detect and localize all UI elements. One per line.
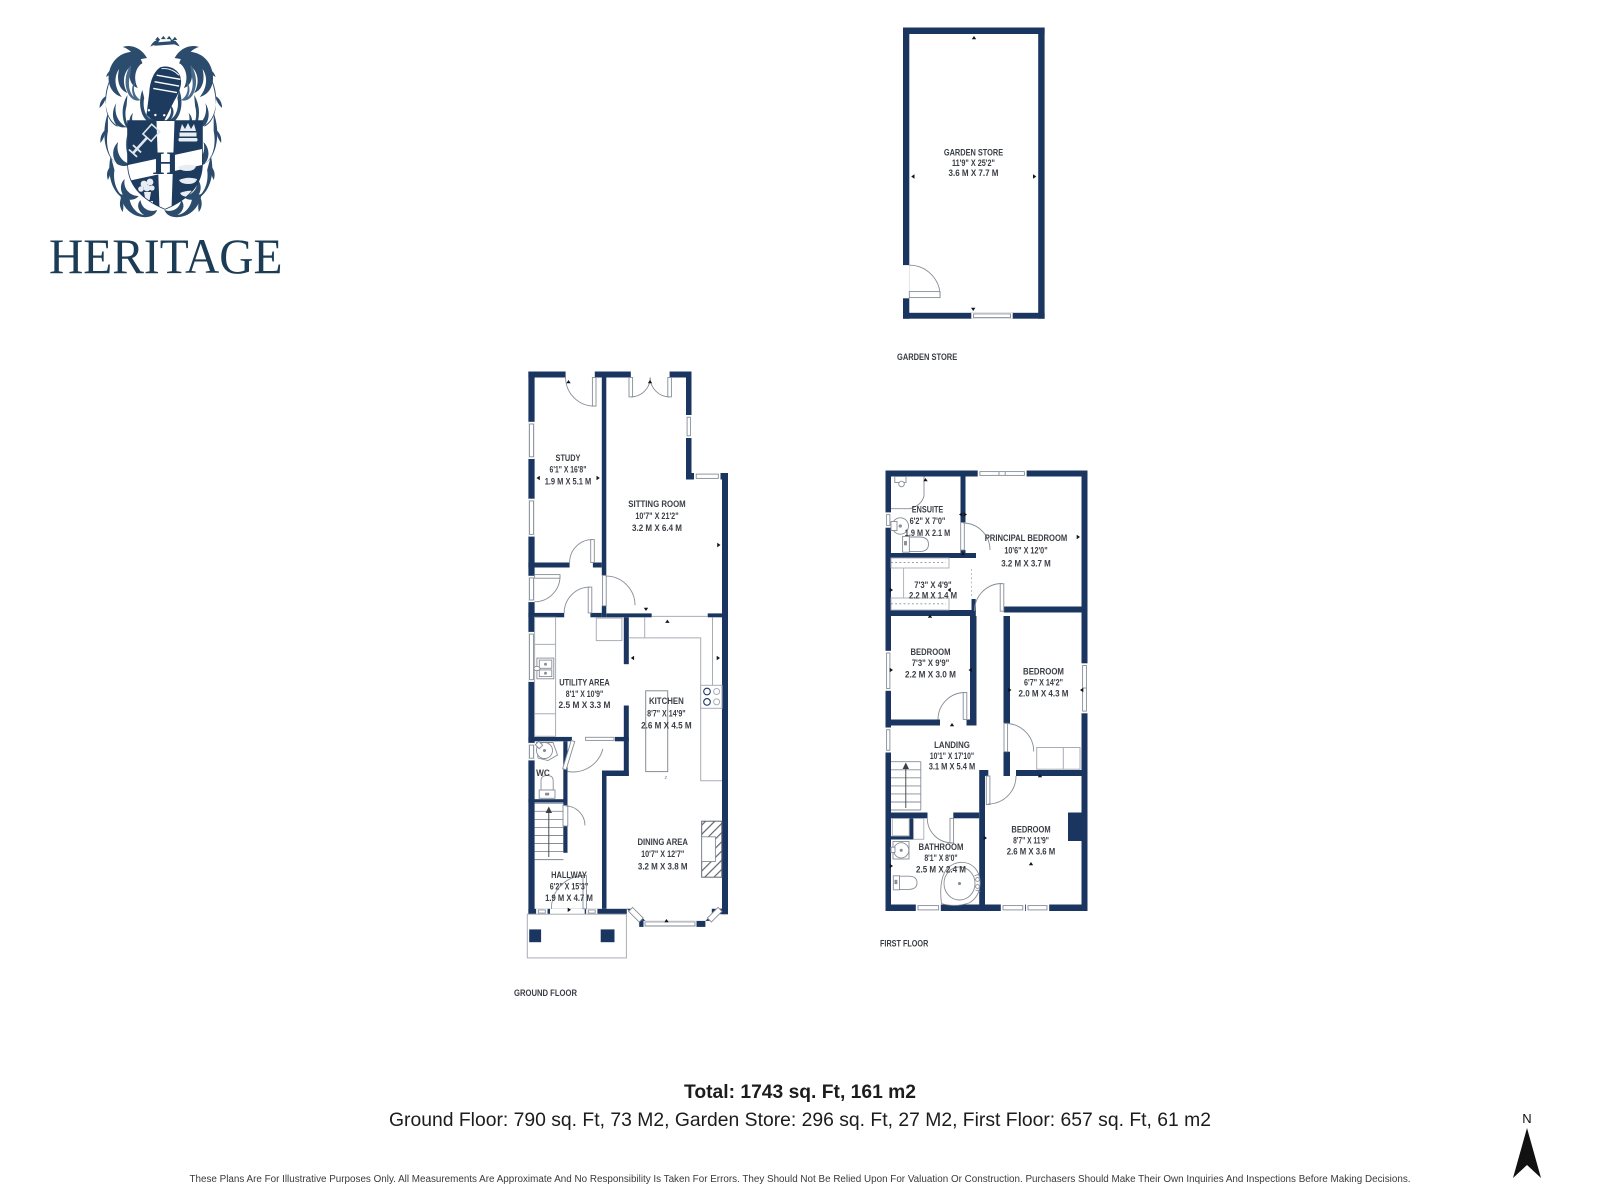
svg-text:2.2 M X 3.0 M: 2.2 M X 3.0 M — [905, 669, 956, 679]
svg-text:KITCHEN: KITCHEN — [649, 696, 684, 706]
svg-text:10'7" X 12'7": 10'7" X 12'7" — [641, 849, 684, 859]
svg-text:7'3" X 4'9": 7'3" X 4'9" — [914, 580, 951, 590]
svg-text:1.9 M X 5.1 M: 1.9 M X 5.1 M — [545, 476, 592, 486]
svg-text:3.2 M X 3.7 M: 3.2 M X 3.7 M — [1001, 558, 1051, 568]
svg-text:BATHROOM: BATHROOM — [919, 842, 964, 852]
svg-text:PRINCIPAL BEDROOM: PRINCIPAL BEDROOM — [985, 533, 1068, 543]
svg-text:DINING AREA: DINING AREA — [637, 837, 688, 847]
svg-text:2.6 M X 3.6 M: 2.6 M X 3.6 M — [1007, 847, 1055, 857]
svg-text:BEDROOM: BEDROOM — [1023, 667, 1064, 677]
svg-text:6'2" X 15'3": 6'2" X 15'3" — [550, 882, 589, 892]
svg-text:8'7" X 14'9": 8'7" X 14'9" — [647, 708, 686, 718]
svg-text:2.2 M X 1.4 M: 2.2 M X 1.4 M — [909, 591, 957, 601]
svg-text:11'9" X 25'2": 11'9" X 25'2" — [952, 158, 995, 168]
svg-text:FIRST FLOOR: FIRST FLOOR — [880, 939, 928, 950]
svg-text:H: H — [153, 146, 179, 182]
svg-text:2.6 M X 4.5 M: 2.6 M X 4.5 M — [641, 721, 692, 731]
svg-text:LANDING: LANDING — [934, 740, 970, 750]
svg-text:3.1 M X 5.4 M: 3.1 M X 5.4 M — [929, 762, 976, 772]
svg-text:HALLWAY: HALLWAY — [551, 870, 587, 880]
svg-text:6'2" X 7'0": 6'2" X 7'0" — [910, 516, 946, 526]
svg-text:3.2 M X 6.4 M: 3.2 M X 6.4 M — [632, 523, 682, 533]
svg-text:3.6 M X 7.7 M: 3.6 M X 7.7 M — [949, 168, 999, 178]
svg-text:GROUND FLOOR: GROUND FLOOR — [514, 988, 577, 999]
svg-text:These Plans Are For Illustrati: These Plans Are For Illustrative Purpose… — [190, 1174, 1411, 1185]
svg-text:STUDY: STUDY — [556, 453, 581, 463]
svg-text:GARDEN STORE: GARDEN STORE — [897, 352, 958, 363]
svg-text:8'7" X 11'9": 8'7" X 11'9" — [1013, 836, 1049, 846]
svg-text:UTILITY AREA: UTILITY AREA — [559, 678, 610, 688]
svg-text:WC: WC — [536, 768, 550, 778]
svg-text:BEDROOM: BEDROOM — [911, 647, 951, 657]
svg-text:8'1" X 10'9": 8'1" X 10'9" — [566, 689, 604, 699]
svg-text:6'1" X 16'8": 6'1" X 16'8" — [550, 465, 587, 475]
svg-text:8'1" X 8'0": 8'1" X 8'0" — [924, 853, 957, 863]
svg-text:6'7" X 14'2": 6'7" X 14'2" — [1024, 678, 1063, 688]
svg-text:10'6" X 12'0": 10'6" X 12'0" — [1004, 546, 1047, 556]
svg-text:2.5 M X 3.3 M: 2.5 M X 3.3 M — [559, 700, 611, 710]
svg-text:2.0 M X 4.3 M: 2.0 M X 4.3 M — [1019, 689, 1069, 699]
svg-text:GARDEN STORE: GARDEN STORE — [944, 148, 1003, 158]
svg-text:BEDROOM: BEDROOM — [1011, 825, 1050, 835]
svg-text:7'3" X 9'9": 7'3" X 9'9" — [912, 658, 950, 668]
svg-text:SITTING ROOM: SITTING ROOM — [628, 499, 685, 509]
svg-text:Ground Floor: 790 sq. Ft, 73 M: Ground Floor: 790 sq. Ft, 73 M2, Garden … — [389, 1109, 1211, 1131]
svg-text:1.9 M X 4.7 M: 1.9 M X 4.7 M — [545, 893, 593, 903]
svg-text:HERITAGE: HERITAGE — [49, 228, 283, 284]
svg-text:z: z — [665, 775, 668, 781]
svg-text:1.9 M X 2.1 M: 1.9 M X 2.1 M — [905, 528, 951, 538]
svg-text:ENSUITE: ENSUITE — [912, 505, 944, 515]
svg-text:10'7" X 21'2": 10'7" X 21'2" — [635, 511, 678, 521]
svg-text:Total: 1743 sq. Ft, 161 m2: Total: 1743 sq. Ft, 161 m2 — [684, 1081, 916, 1103]
svg-text:10'1" X 17'10": 10'1" X 17'10" — [930, 751, 974, 761]
svg-text:N: N — [1522, 1111, 1531, 1126]
svg-text:2.5 M X 2.4 M: 2.5 M X 2.4 M — [916, 864, 966, 874]
svg-text:3.2 M X 3.8 M: 3.2 M X 3.8 M — [638, 861, 688, 871]
